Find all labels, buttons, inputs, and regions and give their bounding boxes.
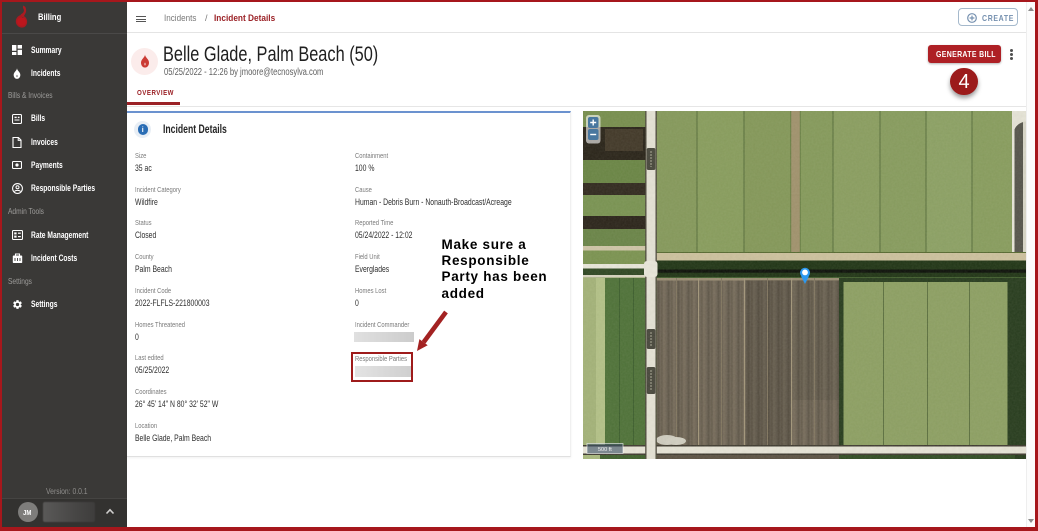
- svg-text:500 ft: 500 ft: [598, 447, 612, 453]
